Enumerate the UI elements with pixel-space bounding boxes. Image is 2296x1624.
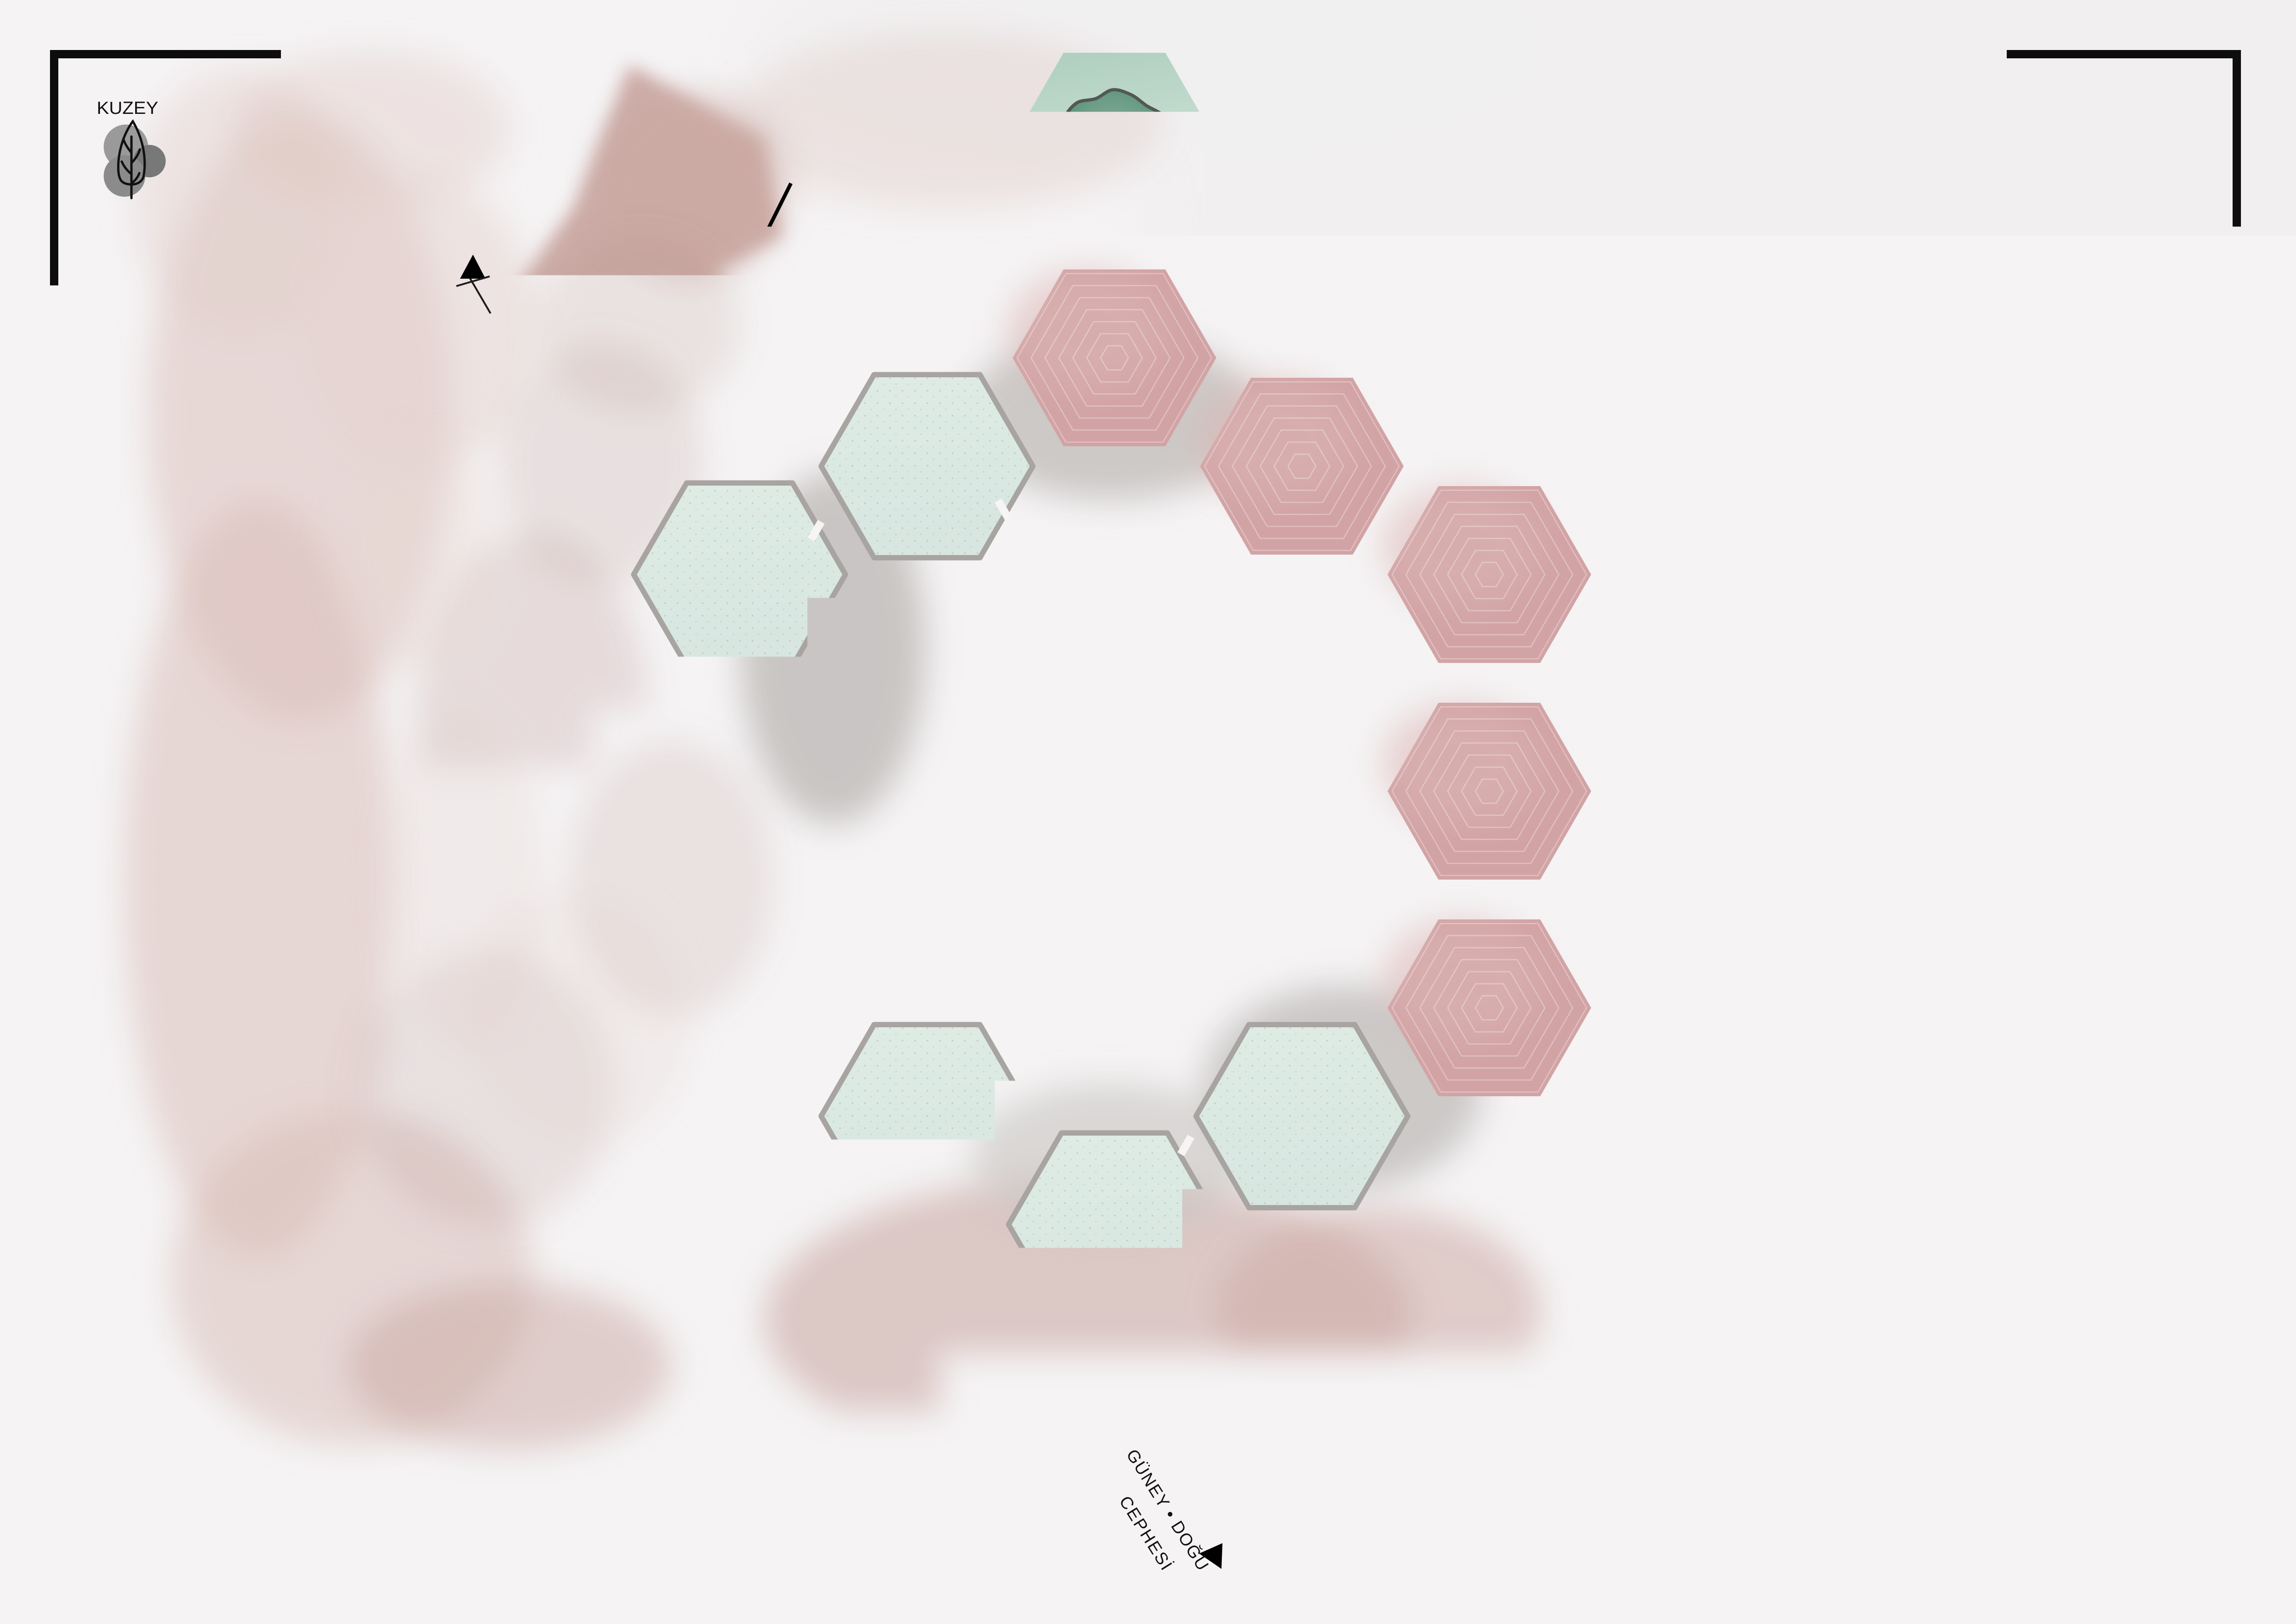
svg-text:VAZİYET PLANI: VAZİYET PLANI xyxy=(1903,1457,2172,1533)
svg-text:KUZEY: KUZEY xyxy=(97,99,158,118)
svg-text:A: A xyxy=(555,787,568,808)
svg-text:B: B xyxy=(1808,1195,1819,1214)
svg-text:TASARIMIN VE ÇİZİMLERİN TÜM HA: TASARIMIN VE ÇİZİMLERİN TÜM HAKLARI MERV… xyxy=(1291,1585,2240,1613)
svg-text:B: B xyxy=(622,505,633,524)
svg-text:A: A xyxy=(1855,793,1868,813)
